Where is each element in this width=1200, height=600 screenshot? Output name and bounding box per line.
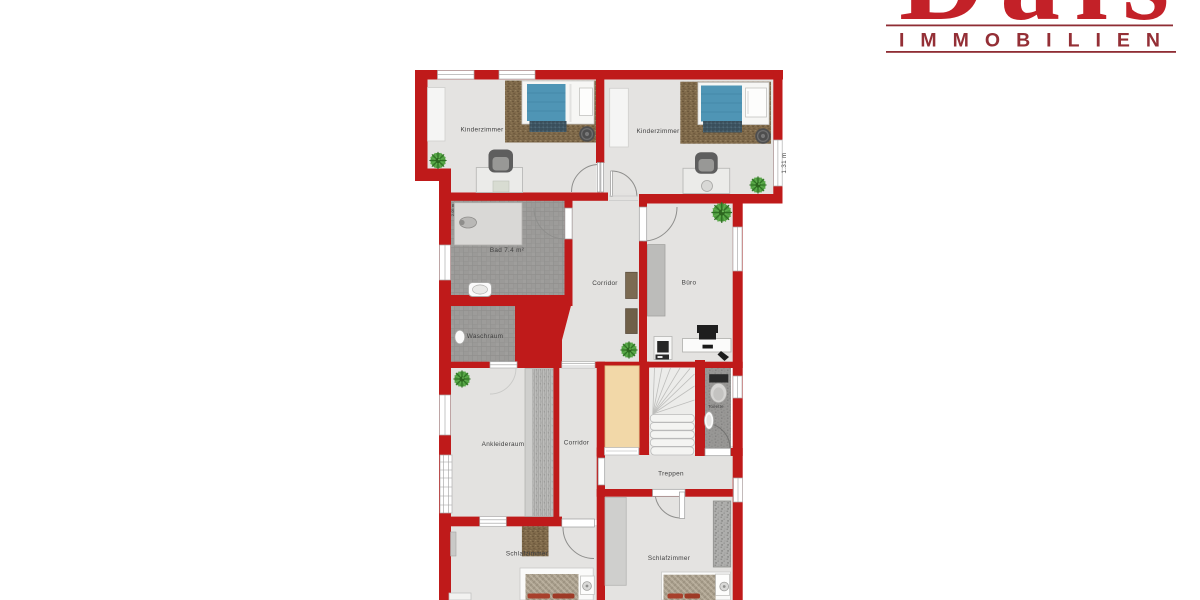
svg-text:2.05 m: 2.05 m — [450, 203, 455, 216]
svg-text:Corridor: Corridor — [564, 440, 590, 447]
svg-text:1.31 m: 1.31 m — [781, 152, 788, 173]
svg-text:Schlafzimmer: Schlafzimmer — [506, 551, 549, 558]
svg-text:Kinderzimmer: Kinderzimmer — [460, 127, 504, 134]
svg-text:Waschraum: Waschraum — [467, 333, 504, 340]
svg-text:Corridor: Corridor — [592, 280, 618, 287]
svg-text:Kinderzimmer: Kinderzimmer — [636, 128, 680, 135]
svg-text:Schlafzimmer: Schlafzimmer — [648, 555, 691, 562]
svg-text:IMMOBILIEN: IMMOBILIEN — [899, 30, 1176, 52]
svg-text:Treppen: Treppen — [658, 471, 684, 478]
svg-text:Ankleideraum: Ankleideraum — [482, 441, 525, 448]
svg-text:Bad 7.4 m²: Bad 7.4 m² — [490, 247, 524, 254]
svg-text:Toilette: Toilette — [708, 404, 724, 409]
svg-text:Büro: Büro — [682, 280, 697, 287]
